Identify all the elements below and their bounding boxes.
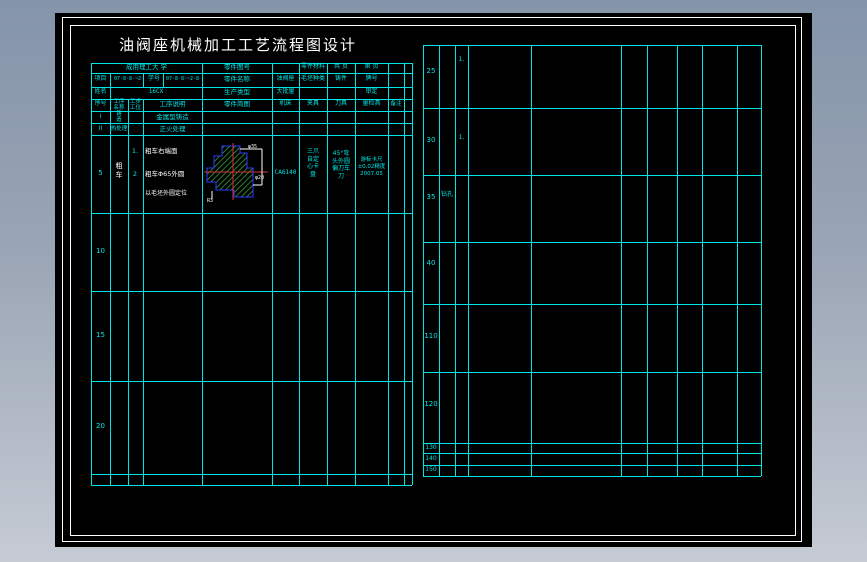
part-name-label: 零件名称 [202, 76, 272, 83]
grade-label: 牌号 [355, 76, 388, 83]
project-code: 07·8·8·~2 [110, 77, 145, 83]
row5-no: 5 [91, 170, 110, 178]
cont-row-no: 150 [423, 467, 439, 474]
cont-row-no: 130 [423, 445, 439, 452]
col-op-desc: 工序说明 [143, 101, 202, 108]
row2-no: II [91, 126, 110, 133]
prod-type-value: 大批量 [272, 89, 299, 96]
dim-label-3: R3 [207, 198, 213, 204]
approve-label: 审定 [355, 89, 388, 96]
col-fixture: 夹具 [299, 101, 327, 108]
cont-row-no: 35 [423, 194, 439, 202]
row5-machine: CA6140 [272, 170, 299, 177]
dim-label-2: φ20 [255, 175, 264, 181]
col-sketch: 零件简图 [202, 101, 272, 108]
row15-no: 15 [91, 332, 110, 340]
row1-op-desc: 金属型铸造 [143, 114, 202, 121]
cont-row-no: 110 [423, 333, 439, 341]
part-material-label: 零件材料 [299, 64, 327, 71]
cont-op-name: 钻孔 [439, 192, 455, 199]
grid-lines [91, 63, 413, 486]
grid-lines [423, 45, 762, 477]
cont-step-no: 1. [455, 135, 468, 142]
row20-no: 20 [91, 423, 110, 431]
continuation-grid [423, 45, 762, 477]
cont-row-no: 30 [423, 137, 439, 145]
cont-row-no: 120 [423, 401, 439, 409]
page-no-label: 第 页 [355, 64, 388, 71]
col-note: 备注 [388, 101, 404, 107]
dim-label-1: φ35 [248, 144, 257, 150]
drawing-title: 油阀座机械加工工艺流程图设计 [118, 34, 358, 55]
part-name-value: 油阀座 [272, 76, 299, 83]
row5-step1-desc: 粗车右端面 [145, 148, 203, 155]
cont-step-no: 1. [455, 57, 468, 64]
row5-step2-no: 2 [128, 171, 142, 178]
cont-row-no: 40 [423, 260, 439, 268]
col-op-name: 工序 名称 [110, 99, 128, 111]
row1-op-name: 铸 造 [110, 111, 128, 123]
row5-fixture: 三爪 自定 心卡 盘 [299, 148, 327, 178]
col-station: 工步 工位 [128, 99, 143, 111]
row5-step2-desc: 粗车Φ65外圆 [145, 171, 203, 178]
row5-note: 以毛坯外圆定位 [145, 191, 203, 198]
part-no-label: 零件图号 [202, 64, 272, 71]
row5-step1-no: 1. [128, 148, 142, 155]
row5-op-name: 粗 车 [110, 162, 128, 180]
cad-viewport: 油阀座机械加工工艺流程图设计 成用理工大 学 零件图号 零件材料 共 页 第 页… [0, 0, 867, 562]
row2-op-desc: 正火处理 [143, 126, 202, 133]
col-gauge: 量检具 [355, 101, 388, 108]
col-machine: 机床 [272, 101, 299, 108]
name-value: 16CX [110, 89, 202, 96]
row10-no: 10 [91, 248, 110, 256]
part-sketch: φ35 φ20 R3 [204, 143, 270, 203]
student-label: 学号 [145, 76, 163, 83]
row5-gauge: 游标卡尺 ±0.02精度 2007.05 [355, 157, 388, 178]
prod-type-label: 生产类型 [202, 89, 272, 96]
col-seq: 序号 [91, 101, 110, 108]
process-card-grid [91, 63, 413, 486]
blank-kind-label: 毛坯种类 [299, 76, 327, 83]
row1-no: I [91, 114, 110, 121]
school-name: 成用理工大 学 [91, 64, 202, 71]
student-code: 07·8·8·~2·8 [163, 77, 202, 83]
name-label: 姓名 [91, 89, 110, 96]
cont-row-no: 25 [423, 68, 439, 76]
cont-row-no: 140 [423, 456, 439, 463]
row2-op-name: 热处理 [110, 126, 128, 132]
blank-kind-value: 铸件 [327, 76, 355, 83]
col-tool: 刀具 [327, 101, 355, 108]
row5-tool: 45°弯 头外圆 偏刀车 刀 [327, 150, 355, 180]
pages-total-label: 共 页 [327, 64, 355, 71]
project-label: 项目 [91, 76, 110, 83]
